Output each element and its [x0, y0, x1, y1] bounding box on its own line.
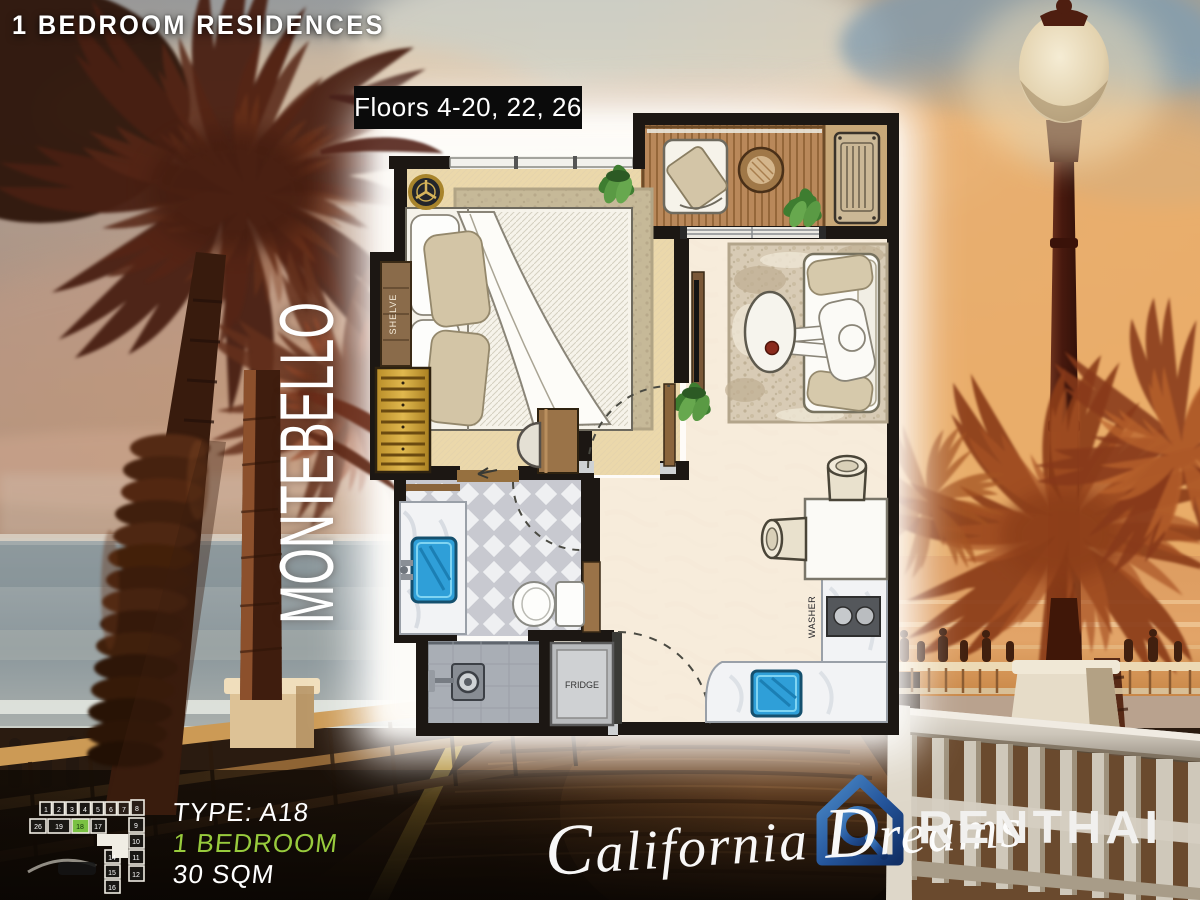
svg-text:8: 8 [135, 806, 139, 813]
svg-text:5: 5 [96, 807, 100, 814]
svg-text:18: 18 [76, 824, 84, 831]
svg-text:14: 14 [108, 855, 116, 862]
svg-text:FRIDGE: FRIDGE [565, 680, 599, 690]
svg-text:WASHER: WASHER [807, 596, 817, 638]
svg-text:12: 12 [132, 872, 140, 879]
svg-text:19: 19 [55, 824, 63, 831]
svg-text:SHELVE: SHELVE [388, 294, 398, 335]
svg-text:7: 7 [122, 807, 126, 814]
svg-text:6: 6 [109, 807, 113, 814]
svg-text:9: 9 [134, 823, 138, 830]
svg-text:4: 4 [83, 807, 87, 814]
svg-text:3: 3 [70, 807, 74, 814]
svg-text:15: 15 [108, 870, 116, 877]
svg-text:17: 17 [94, 824, 102, 831]
svg-text:26: 26 [34, 824, 42, 831]
svg-text:10: 10 [132, 839, 140, 846]
svg-text:16: 16 [108, 885, 116, 892]
svg-text:2: 2 [57, 807, 61, 814]
svg-text:1: 1 [44, 807, 48, 814]
svg-text:11: 11 [132, 855, 139, 862]
